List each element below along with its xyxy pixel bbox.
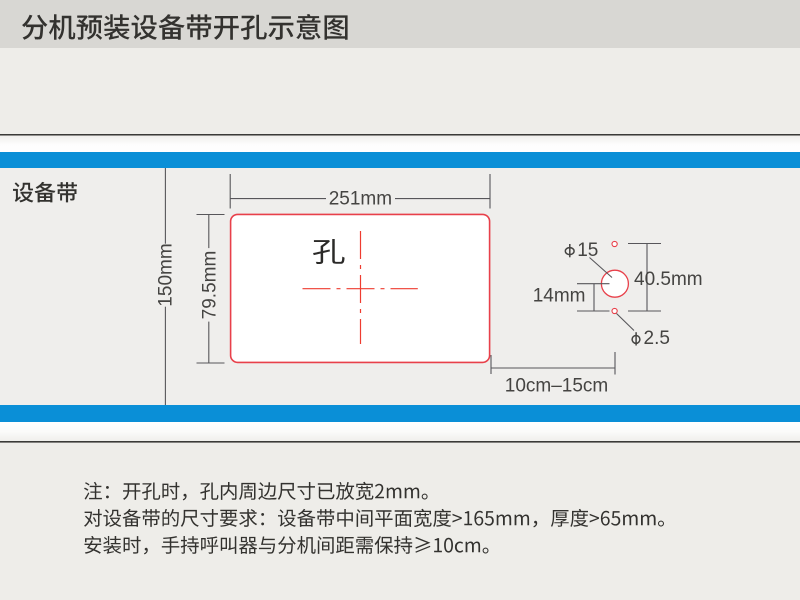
svg-text:79.5mm: 79.5mm (199, 251, 220, 320)
svg-text:2.5: 2.5 (644, 328, 670, 349)
svg-text:40.5mm: 40.5mm (634, 269, 703, 290)
svg-text:15: 15 (577, 240, 598, 261)
svg-text:10cm–15cm: 10cm–15cm (505, 375, 609, 396)
svg-text:150mm: 150mm (156, 243, 177, 306)
svg-text:14mm: 14mm (533, 286, 586, 307)
svg-text:251mm: 251mm (329, 189, 392, 210)
